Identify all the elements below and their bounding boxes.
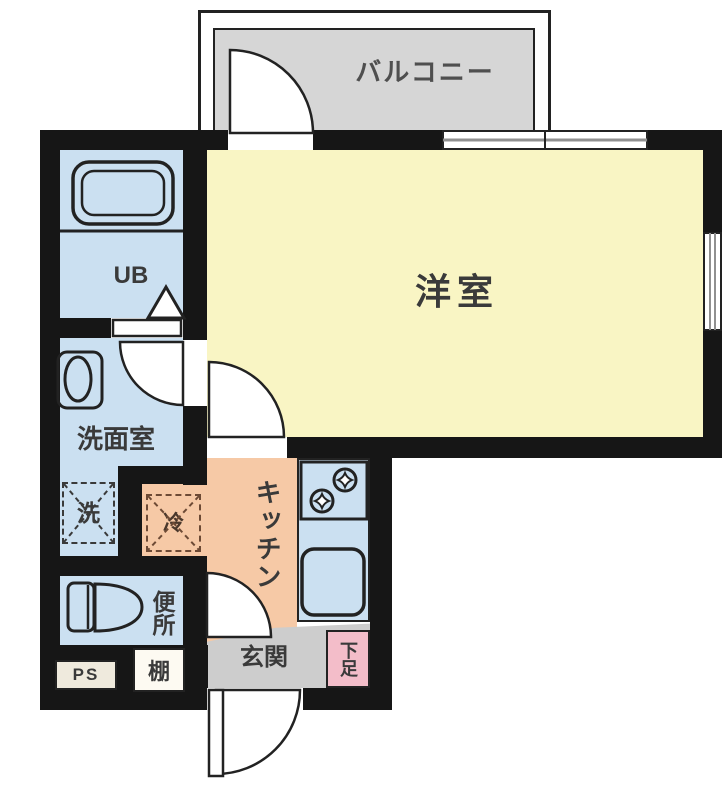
toilet-label: 便所 (146, 578, 174, 648)
kitchen-counter (297, 458, 370, 622)
balcony-label: バルコニー (330, 58, 520, 87)
room-unit-bath (60, 150, 183, 318)
door-opening-western-room (207, 437, 287, 458)
kitchen-label: キッチン (249, 462, 281, 607)
door-opening-balcony (228, 130, 313, 150)
shelf-box: 棚 (133, 648, 185, 692)
door-opening-entrance (207, 688, 303, 710)
washing-machine-box: 洗 (62, 482, 115, 544)
refrigerator-box: 冷 (146, 494, 201, 552)
pipe-space-label: PS (73, 665, 100, 685)
entrance-label: 玄関 (210, 645, 318, 671)
washroom-label: 洗面室 (60, 425, 172, 454)
wall-segment (40, 556, 207, 576)
wall-segment (183, 556, 207, 710)
shoe-cabinet-label: 下足 (335, 641, 361, 677)
wall-segment (40, 130, 722, 150)
floor-plan: 下足 棚 PS 洗 冷 (0, 0, 722, 800)
western-room-label: 洋室 (377, 272, 537, 312)
washing-machine-label: 洗 (77, 502, 100, 525)
unit-bath-label: UB (100, 263, 162, 289)
door-opening-unit-bath (111, 318, 183, 338)
wall-segment (370, 455, 392, 710)
door-opening-washroom (183, 340, 207, 406)
wall-segment (183, 150, 207, 485)
refrigerator-label: 冷 (163, 513, 184, 534)
shelf-label: 棚 (148, 654, 170, 686)
pipe-space-box: PS (55, 660, 117, 690)
wall-segment (40, 130, 60, 710)
wall-segment (703, 130, 722, 458)
shoe-cabinet: 下足 (326, 630, 370, 688)
